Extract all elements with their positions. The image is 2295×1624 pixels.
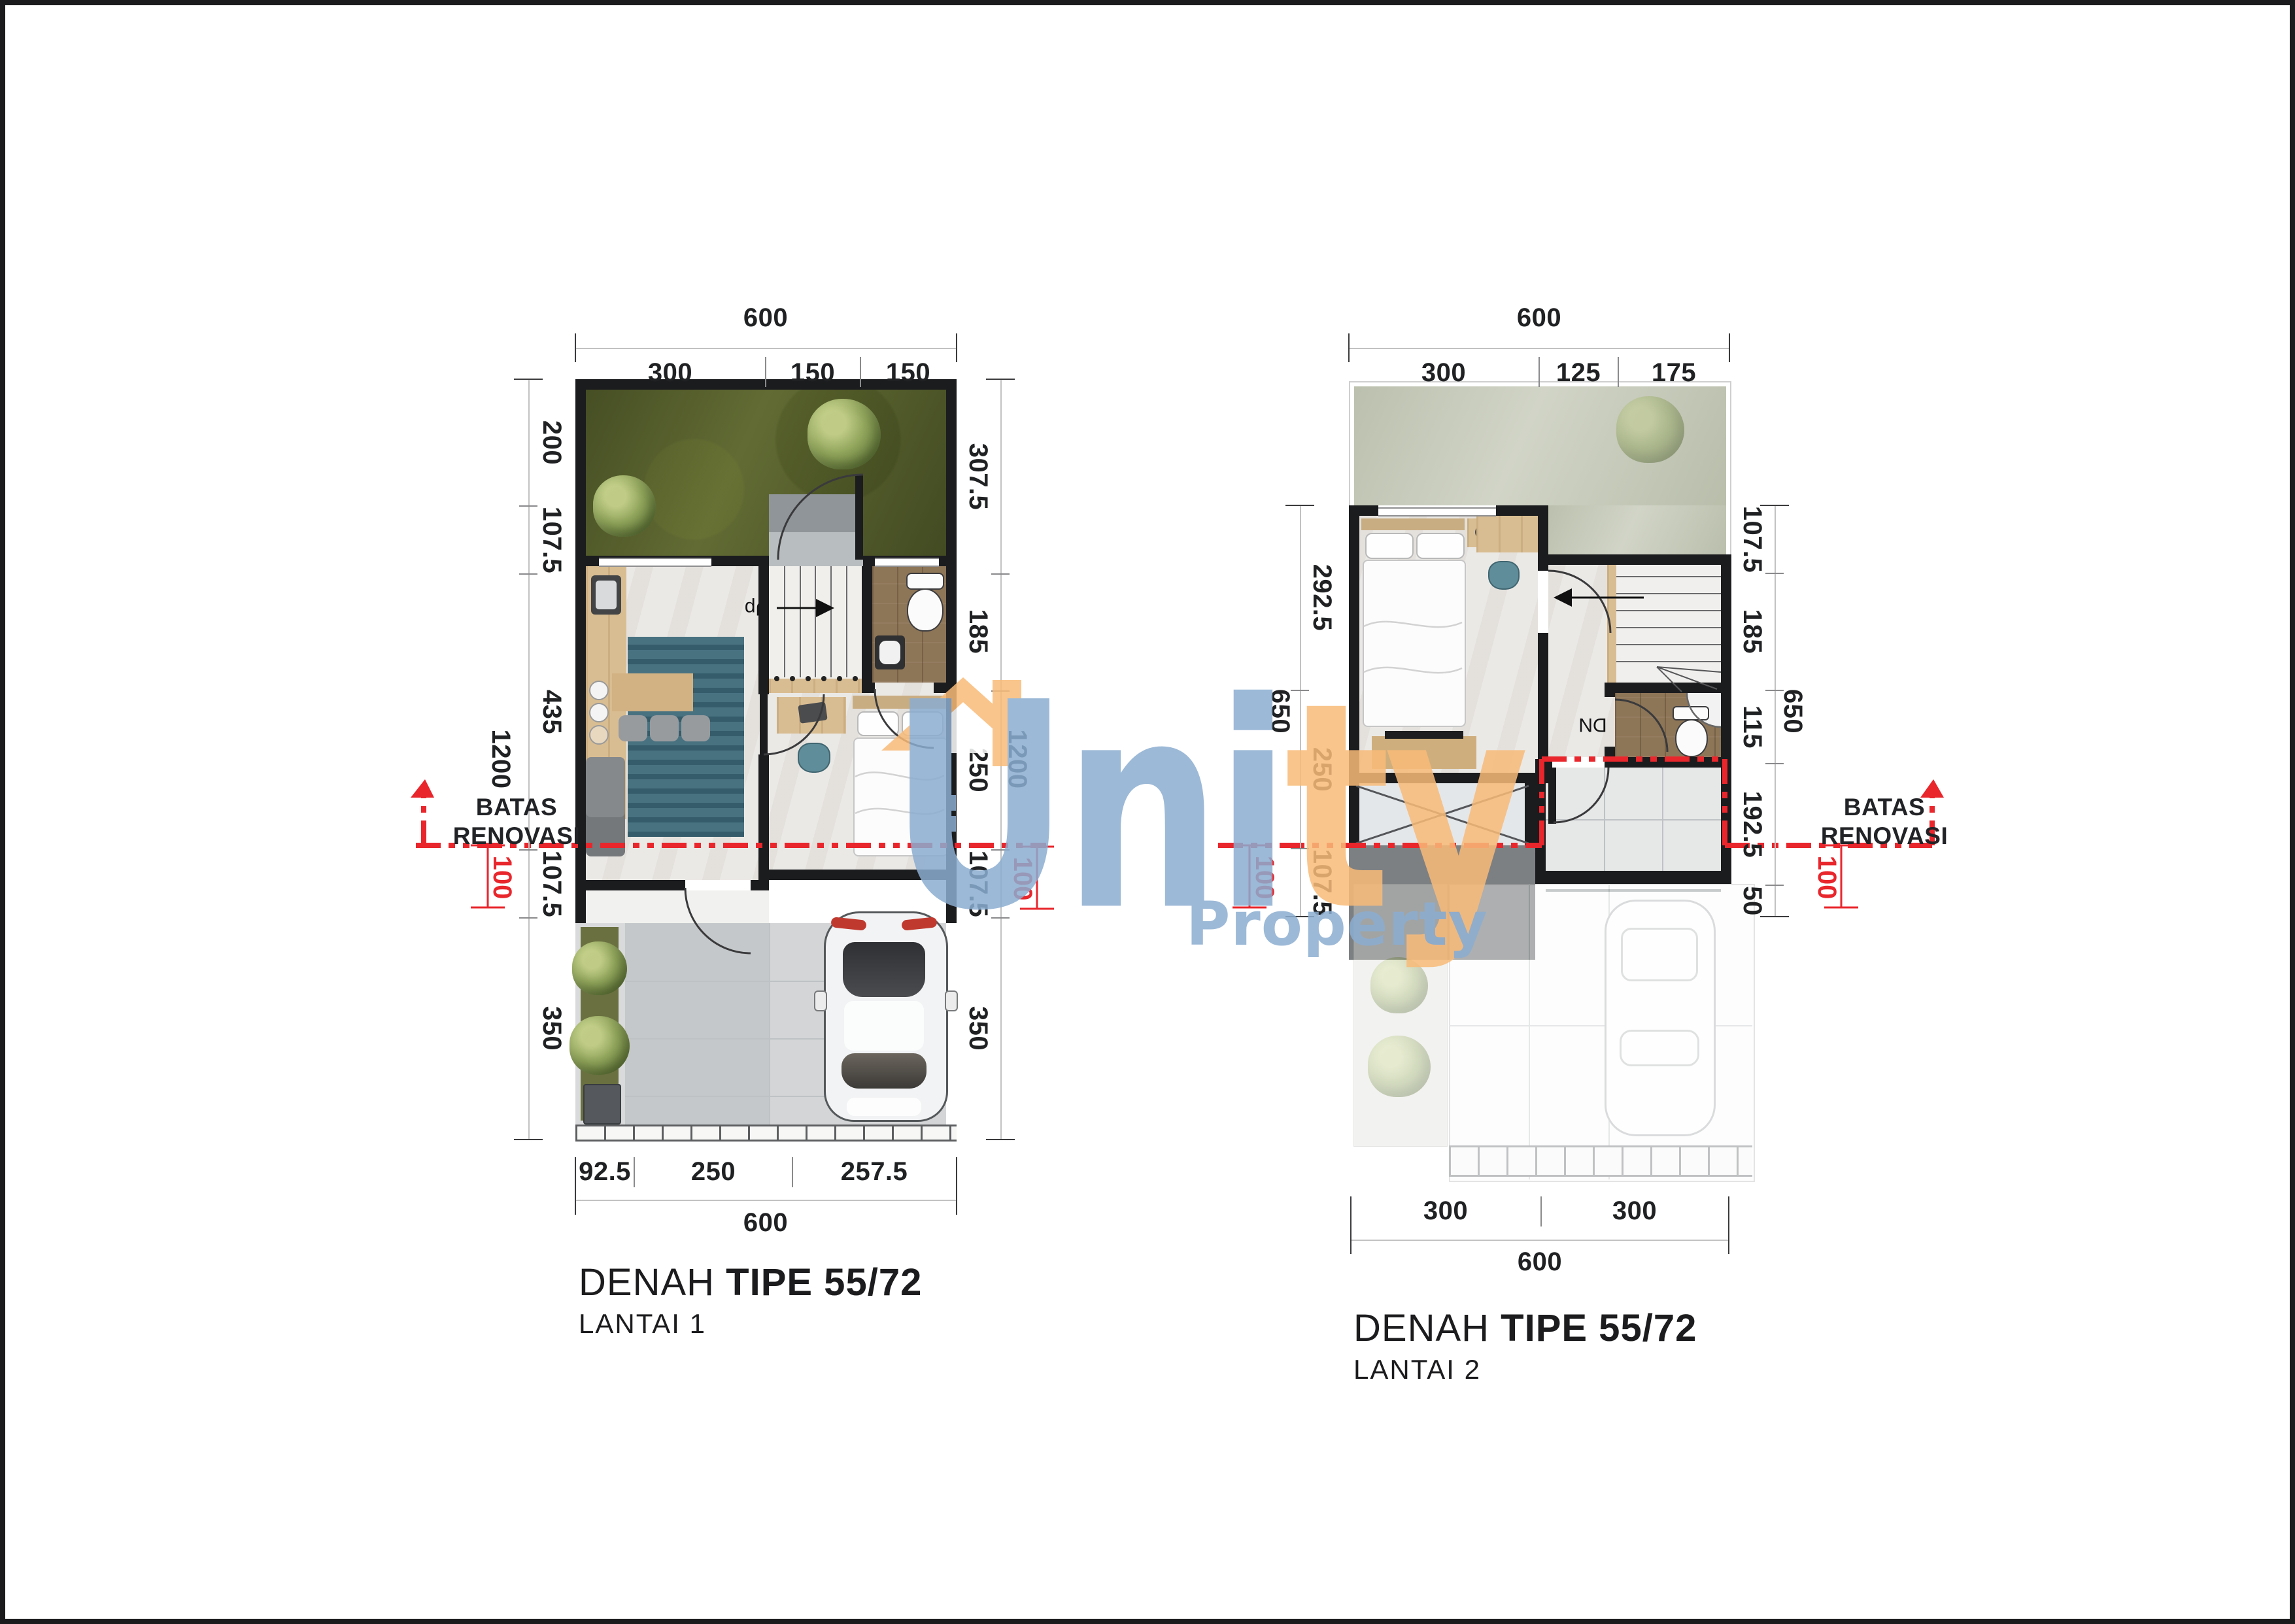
p1-wall [946,379,957,923]
p1-bed-headboard [853,696,946,709]
p2-balcony-door-leaf [1548,768,1556,824]
plan-annotations-svg [5,5,2295,1624]
p2-dim-total-bottom: 600 [1518,1249,1562,1275]
p1-sep [519,573,537,575]
p2-tick [1285,916,1314,917]
p2-dim-left-seg: 107.5 [1309,849,1335,917]
p1-tree-icon [807,399,881,469]
p2-dim-right-seg: 192.5 [1739,791,1765,858]
p2-title-type: TIPE 55/72 [1501,1307,1697,1349]
p1-tick [514,1139,543,1140]
p2-wall [1525,783,1535,845]
p2-wall [1721,554,1731,884]
p1-dim-left-seg: 435 [539,690,565,734]
p2-wall [1535,759,1546,884]
p2-dim-line-left [1300,505,1301,917]
p1-title: DENAH TIPE 55/72 [579,1262,922,1304]
p1-dim-total-right: 1200 [1004,730,1030,789]
p2-toilet-bowl [1675,719,1708,757]
p1-stairs-landing [769,679,862,693]
p2-dim-right-seg: 50 [1739,886,1765,916]
p1-dim-line-left [528,379,530,1140]
p2-sep [1618,357,1619,387]
p1-dim-right-seg: 307.5 [965,443,991,511]
p1-stool [681,715,710,741]
p1-window [599,558,711,567]
p2-ghost-shrub-icon [1368,1036,1431,1097]
p2-dim-bottom-seg: 300 [1423,1198,1468,1224]
p2-wall [1615,683,1731,693]
p1-sink-basin [596,581,617,609]
p2-dim-left-seg: 292.5 [1309,564,1335,632]
floorplan-sheet: Up [0,0,2295,1624]
p1-car [824,911,948,1122]
p1-tick [575,333,576,362]
p1-sep [860,357,861,387]
p1-wall [862,566,872,683]
p1-dim-total-top: 600 [743,305,788,331]
p2-tick [1350,1196,1351,1254]
p2-dim-total-top: 600 [1517,305,1561,331]
p1-car-taillight [901,917,937,931]
p2-title: DENAH TIPE 55/72 [1353,1308,1697,1349]
p1-rear-wall [769,870,946,880]
p2-tick [1729,333,1730,362]
p2-dim-top-seg: 300 [1421,360,1466,386]
p2-wall [1538,505,1548,571]
p2-batas-line1: BATAS [1821,793,1948,822]
p1-dim-total-bottom: 600 [743,1210,788,1236]
p2-tick [1285,505,1314,506]
p2-grout [1546,819,1721,820]
p1-vanity [875,635,905,669]
p1-plate [589,681,609,700]
p1-wall [758,754,769,880]
p1-bed-duvet [853,737,948,856]
p2-offset-label: 100 [1251,856,1278,900]
p1-dim-left-seg: 107.5 [539,507,565,574]
p2-dim-line-bottom [1351,1240,1729,1241]
p1-offset-label: 100 [489,856,515,900]
p2-ghost-shrub-icon [1370,957,1428,1013]
p1-car-roof [844,1001,924,1051]
p1-dim-bottom-seg: 250 [691,1159,736,1185]
p1-dim-line-right [1000,379,1002,1140]
p1-dim-top-seg: 150 [886,360,930,386]
p2-tick [1760,505,1789,506]
p2-ghost-car-window [1621,928,1698,981]
p2-desk-chair [1488,561,1520,590]
p1-shrub-icon [569,1016,630,1075]
p1-sep [519,917,537,919]
p1-dim-total-left: 1200 [488,730,514,789]
p1-dim-bottom-seg: 92.5 [579,1159,631,1185]
p1-sep [765,357,766,387]
p1-dim-right-seg: 350 [965,1006,991,1051]
p2-ghost-planter [1353,884,1448,1147]
p2-desk [1476,516,1538,552]
p1-sep [519,505,537,507]
p1-wall [586,880,685,890]
p2-pillow [1365,533,1414,559]
p1-tick [575,1157,576,1215]
p2-ghost-grout [1529,884,1530,1179]
p2-sep [1765,690,1784,691]
p2-wall [1349,773,1548,783]
p2-dim-top-seg: 175 [1652,360,1696,386]
p2-wall [1349,505,1359,845]
p1-window [875,558,939,567]
p2-bed-headboard [1361,518,1465,530]
p1-dim-left-seg: 107.5 [539,851,565,918]
p1-dim-left-seg: 350 [539,1006,565,1051]
p1-batas-line2: RENOVASI [453,822,581,851]
p2-tree-faded-icon [1616,396,1684,463]
p2-pillow [1416,533,1465,559]
p1-batas-line1: BATAS [453,793,581,822]
p2-bed-duvet [1363,560,1466,727]
p1-stool [650,715,679,741]
p1-tick [956,333,957,362]
p1-pillow [902,711,943,736]
p1-wall [751,880,769,890]
p1-tick [514,379,543,380]
p1-kitchen-sink [591,575,621,615]
p2-ghost-gate [1449,1145,1752,1177]
p1-car-mirror [814,990,827,1011]
p1-plate [589,703,609,722]
p1-tree-icon [593,475,656,537]
p2-sep [1291,690,1309,691]
p2-title-prefix: DENAH [1353,1307,1501,1349]
p1-car-taillight [830,917,866,931]
p1-toilet-tank [906,573,944,590]
p1-dim-top-seg: 300 [648,360,692,386]
p2-tick [1728,1196,1729,1254]
p1-entry-step [769,494,863,532]
p1-car-windshield [841,1053,926,1089]
p1-sep [991,690,1010,692]
p2-stair-stringer [1607,565,1616,683]
p1-entry-door-leaf [855,475,863,560]
unity-property-logo: Unity Property [5,5,2295,1624]
p1-offset-label: 100 [1010,857,1036,901]
p1-sofa [586,757,625,856]
p2-wall [1608,757,1731,768]
p1-stairs [769,566,862,679]
p2-stairs-label: DN [1578,715,1606,734]
p1-toilet-bowl [907,588,943,632]
p1-stool [619,715,647,741]
p1-wall [934,683,946,693]
p2-dim-top-seg: 125 [1556,360,1601,386]
p2-window [1378,507,1496,516]
p2-floor-label: LANTAI 2 [1353,1356,1481,1383]
p2-wall [1546,757,1552,768]
p1-dim-right-seg: 185 [965,609,991,654]
p1-sep [991,573,1010,575]
p1-bedroom-door-leaf [760,694,768,754]
p1-desk-chair [798,743,830,773]
p1-laptop [798,702,827,724]
p1-front-gate [575,1125,957,1142]
p2-tv [1385,731,1463,739]
p1-floor-label: LANTAI 1 [579,1310,706,1338]
p2-dim-total-left: 650 [1267,689,1293,734]
p1-dim-line-bottom [575,1200,957,1201]
p2-sep [1765,885,1784,886]
p1-sep [991,849,1010,851]
p1-shrub-icon [572,941,627,995]
p1-dim-top-seg: 150 [790,360,835,386]
p2-tick [1760,916,1789,917]
p2-batas-line2: RENOVASI [1821,822,1948,851]
p1-dim-left-seg: 200 [539,420,565,465]
p2-dim-left-seg: 250 [1309,747,1335,792]
p1-dim-line-top [575,348,957,349]
p2-dim-line-top [1349,348,1729,349]
p1-title-prefix: DENAH [579,1261,726,1304]
p1-washbasin [879,641,900,664]
p1-trash-bin [583,1084,621,1125]
p1-car-rear-window [843,942,925,997]
p2-sep [1538,357,1540,387]
p2-sep [1291,848,1309,849]
p2-wall [1535,871,1731,884]
p1-tick [956,1157,957,1215]
p2-wall [1605,683,1615,697]
p2-batas-label: BATAS RENOVASI [1821,793,1948,850]
p1-car-hood [847,1098,921,1116]
p1-tick [986,379,1015,380]
p2-sep [1540,1196,1542,1226]
p2-dim-right-seg: 115 [1739,705,1765,749]
p1-batas-label: BATAS RENOVASI [453,793,581,850]
p1-pillow [857,711,899,736]
p2-tv-console [1372,736,1476,769]
p2-ghost-car [1605,900,1716,1136]
p2-offset-label: 100 [1814,856,1840,900]
p2-void [1359,783,1525,845]
p2-dim-total-right: 650 [1780,689,1806,734]
p1-plate [589,725,609,745]
p2-dim-right-seg: 107.5 [1739,506,1765,573]
p2-wall [1548,554,1731,565]
p2-ghost-car-windshield [1620,1030,1699,1066]
p1-sep [991,917,1010,919]
p1-dim-right-seg: 250 [965,748,991,792]
p1-dining-table [612,673,693,711]
p1-porch [586,890,769,923]
p1-entry-path [769,532,863,566]
p1-dim-bottom-seg: 257.5 [841,1159,908,1185]
p1-car-mirror [945,990,958,1011]
p2-dim-line-right [1775,505,1776,917]
p1-wall [758,556,769,694]
p2-stairs [1615,565,1721,683]
p1-sep [634,1157,635,1187]
p1-wall [862,683,875,693]
p2-toilet-tank [1673,706,1709,720]
p2-sep [1765,573,1784,574]
p1-title-type: TIPE 55/72 [726,1261,922,1304]
p1-sep [792,1157,793,1187]
p2-sep [1765,763,1784,764]
p1-dim-right-seg: 107.5 [965,851,991,918]
p2-tick [1348,333,1350,362]
p2-dim-bottom-seg: 300 [1612,1198,1657,1224]
p1-tick [986,1139,1015,1140]
p2-dim-right-seg: 185 [1739,609,1765,654]
